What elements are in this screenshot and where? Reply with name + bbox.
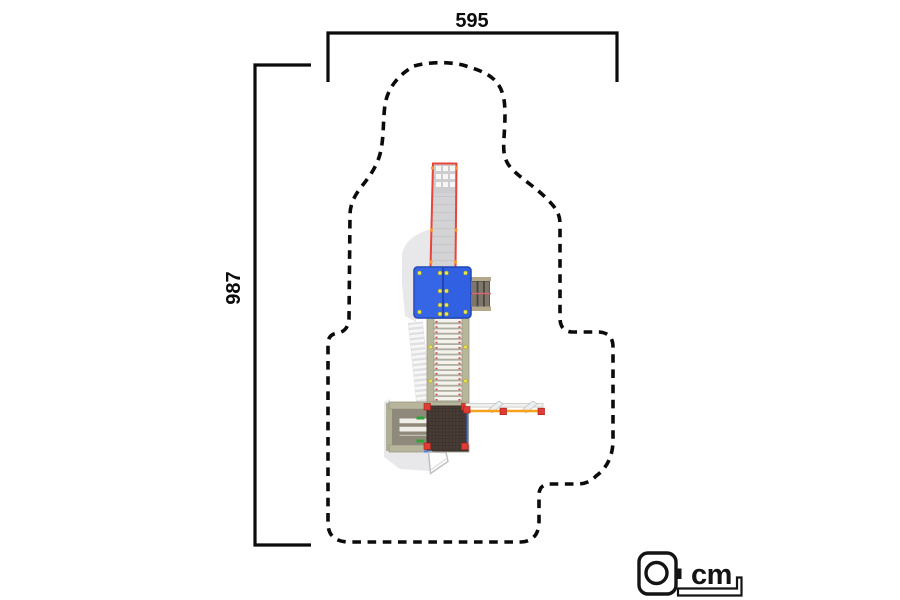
perforation-holes — [439, 166, 453, 190]
unit-label: cm — [691, 559, 732, 591]
gate-panel — [429, 452, 449, 474]
left-dimension-label: 987 — [223, 271, 245, 304]
left-dimension: 987 — [223, 65, 311, 545]
rung-bridge — [427, 318, 469, 407]
dimension-drawing-canvas: 595 987 cm — [0, 0, 900, 600]
dimension-drawing-page: 595 987 cm — [0, 0, 900, 600]
roof-panel — [414, 267, 471, 318]
top-dimension-label: 595 — [455, 10, 488, 32]
balance-bar — [464, 401, 545, 415]
slide — [429, 163, 458, 268]
steps-end-cap — [386, 403, 392, 451]
bridge-rail-left — [427, 318, 434, 407]
side-steps — [471, 277, 491, 311]
slide-rail-right — [456, 163, 457, 268]
top-dimension-bracket — [328, 33, 617, 82]
top-dimension: 595 — [328, 10, 617, 82]
left-dimension-bracket — [255, 65, 311, 545]
unit-legend: cm — [639, 553, 742, 596]
bridge-rail-right — [462, 318, 469, 407]
